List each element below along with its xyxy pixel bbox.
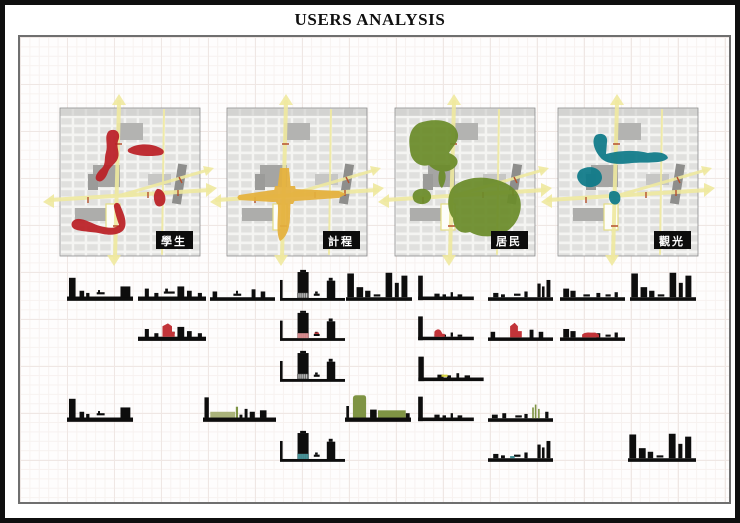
elevation-strip-highlight-red: [560, 308, 625, 343]
map-label: 計程: [323, 231, 360, 249]
elevation-strip: [417, 267, 475, 303]
map-panel-taxi: 計程: [207, 92, 387, 286]
elevation-strip-highlight-red: [138, 308, 206, 343]
analysis-board: USERS ANALYSIS: [0, 0, 740, 523]
map-label-text: 學生: [161, 234, 187, 248]
map-label-text: 居民: [496, 235, 522, 248]
elevation-strip: [67, 388, 133, 424]
elevation-strip-highlight-red: [417, 308, 475, 343]
elevation-strip-highlight-red: [280, 308, 345, 343]
elevation-strip: [280, 348, 345, 384]
elevation-strip-highlight-olive: [488, 388, 553, 424]
map-label-text: 觀光: [659, 234, 685, 248]
elevation-strip-highlight-red: [488, 308, 553, 343]
elevation-strip: [488, 267, 553, 303]
elevation-strip-highlight-yellow: [417, 348, 485, 384]
map-panel-residents: 居民: [375, 92, 555, 286]
elevation-strip-highlight-olive: [345, 388, 411, 424]
elevation-strip-highlight-olive: [203, 388, 276, 424]
elevation-strip-highlight-teal: [280, 428, 345, 464]
elevation-strip: [346, 267, 412, 303]
map-panel-students: 學生: [40, 92, 220, 286]
map-panel-tourists: 觀光: [538, 92, 718, 286]
page-title: USERS ANALYSIS: [5, 10, 735, 30]
elevation-strip: [630, 267, 696, 303]
elevation-strip: [560, 267, 625, 303]
map-label: 居民: [491, 231, 528, 249]
map-label-text: 計程: [328, 234, 354, 248]
elevation-strip-highlight-teal: [488, 428, 553, 464]
elevation-strip: [628, 428, 696, 464]
elevation-strip: [138, 267, 206, 303]
elevation-strip: [280, 267, 345, 303]
elevation-strip: [67, 267, 133, 303]
map-label: 學生: [156, 231, 193, 249]
elevation-strip: [417, 388, 475, 424]
elevation-strip: [210, 267, 275, 303]
map-label: 觀光: [654, 231, 691, 249]
